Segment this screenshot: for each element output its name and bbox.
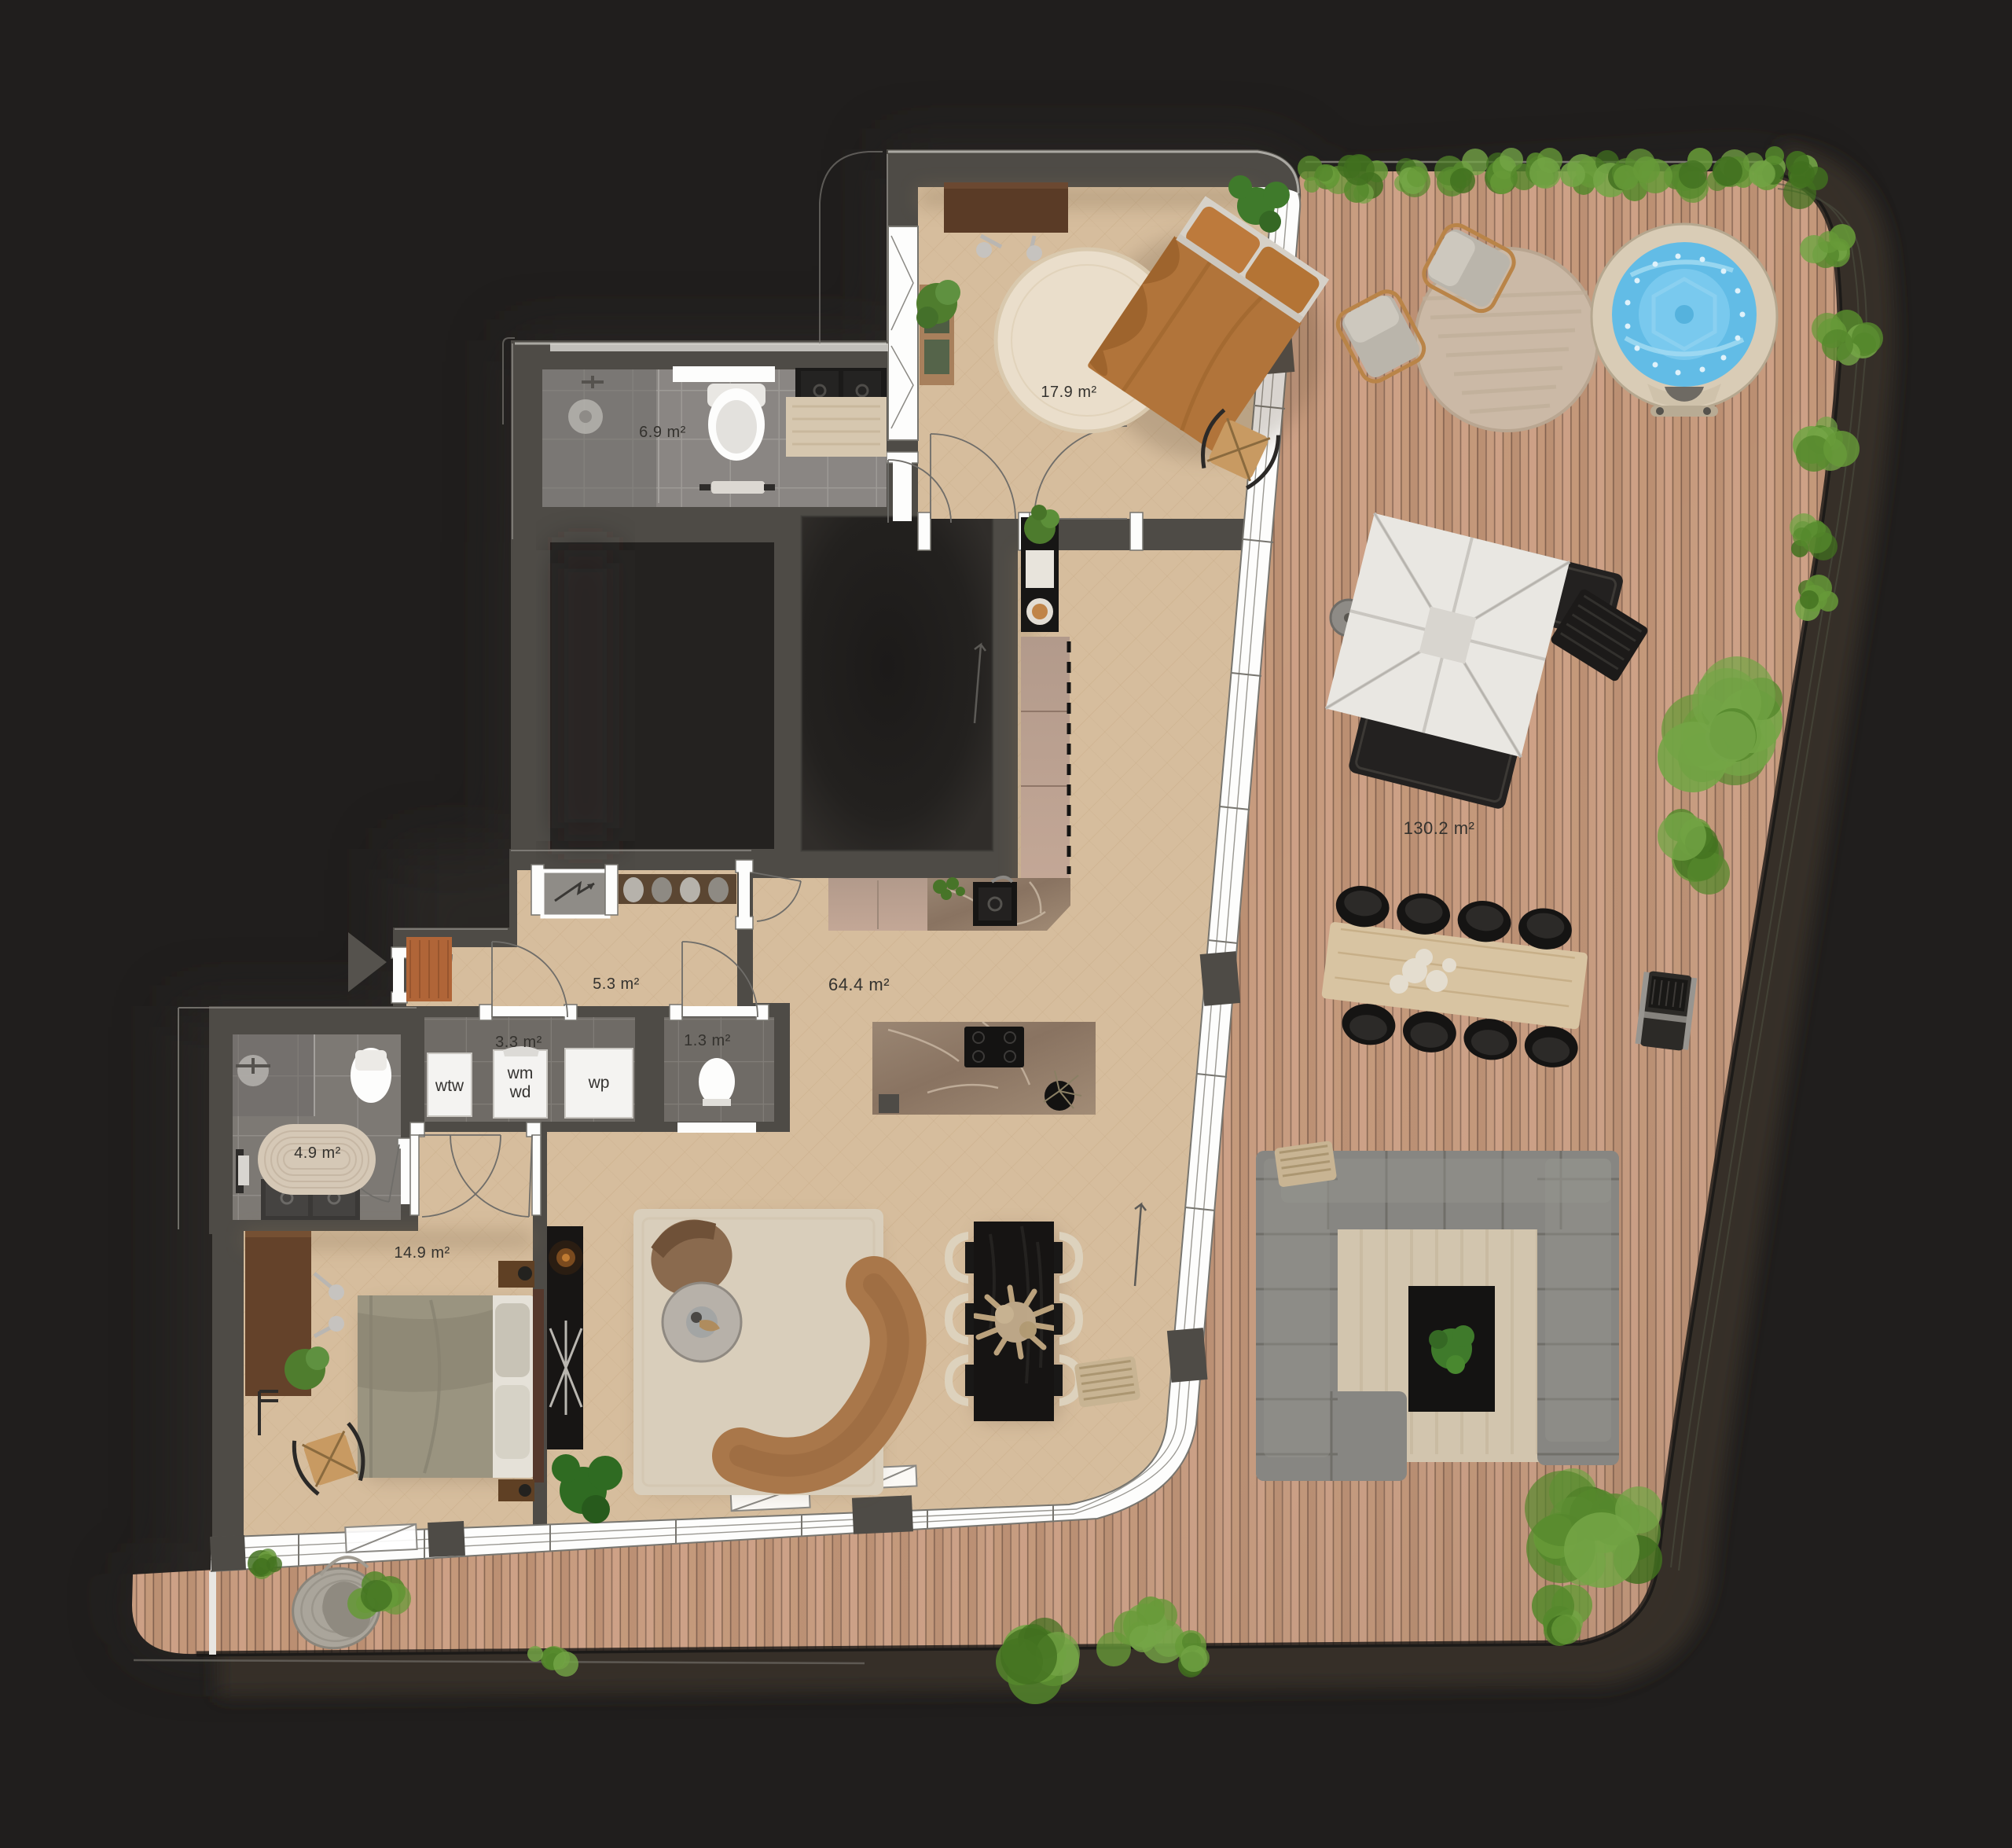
svg-text:17.9 m²: 17.9 m²	[1041, 384, 1096, 401]
svg-text:64.4 m²: 64.4 m²	[828, 975, 890, 994]
svg-text:1.3 m²: 1.3 m²	[684, 1032, 731, 1049]
svg-text:wm: wm	[507, 1064, 534, 1082]
svg-text:130.2 m²: 130.2 m²	[1404, 818, 1475, 838]
svg-text:wp: wp	[588, 1074, 610, 1092]
svg-text:3.3 m²: 3.3 m²	[495, 1034, 542, 1051]
svg-text:6.9 m²: 6.9 m²	[639, 424, 686, 441]
svg-text:wtw: wtw	[435, 1077, 464, 1095]
svg-text:5.3 m²: 5.3 m²	[593, 975, 640, 993]
svg-text:4.9 m²: 4.9 m²	[294, 1144, 341, 1162]
svg-text:14.9 m²: 14.9 m²	[394, 1244, 450, 1262]
svg-text:wd: wd	[509, 1083, 531, 1101]
